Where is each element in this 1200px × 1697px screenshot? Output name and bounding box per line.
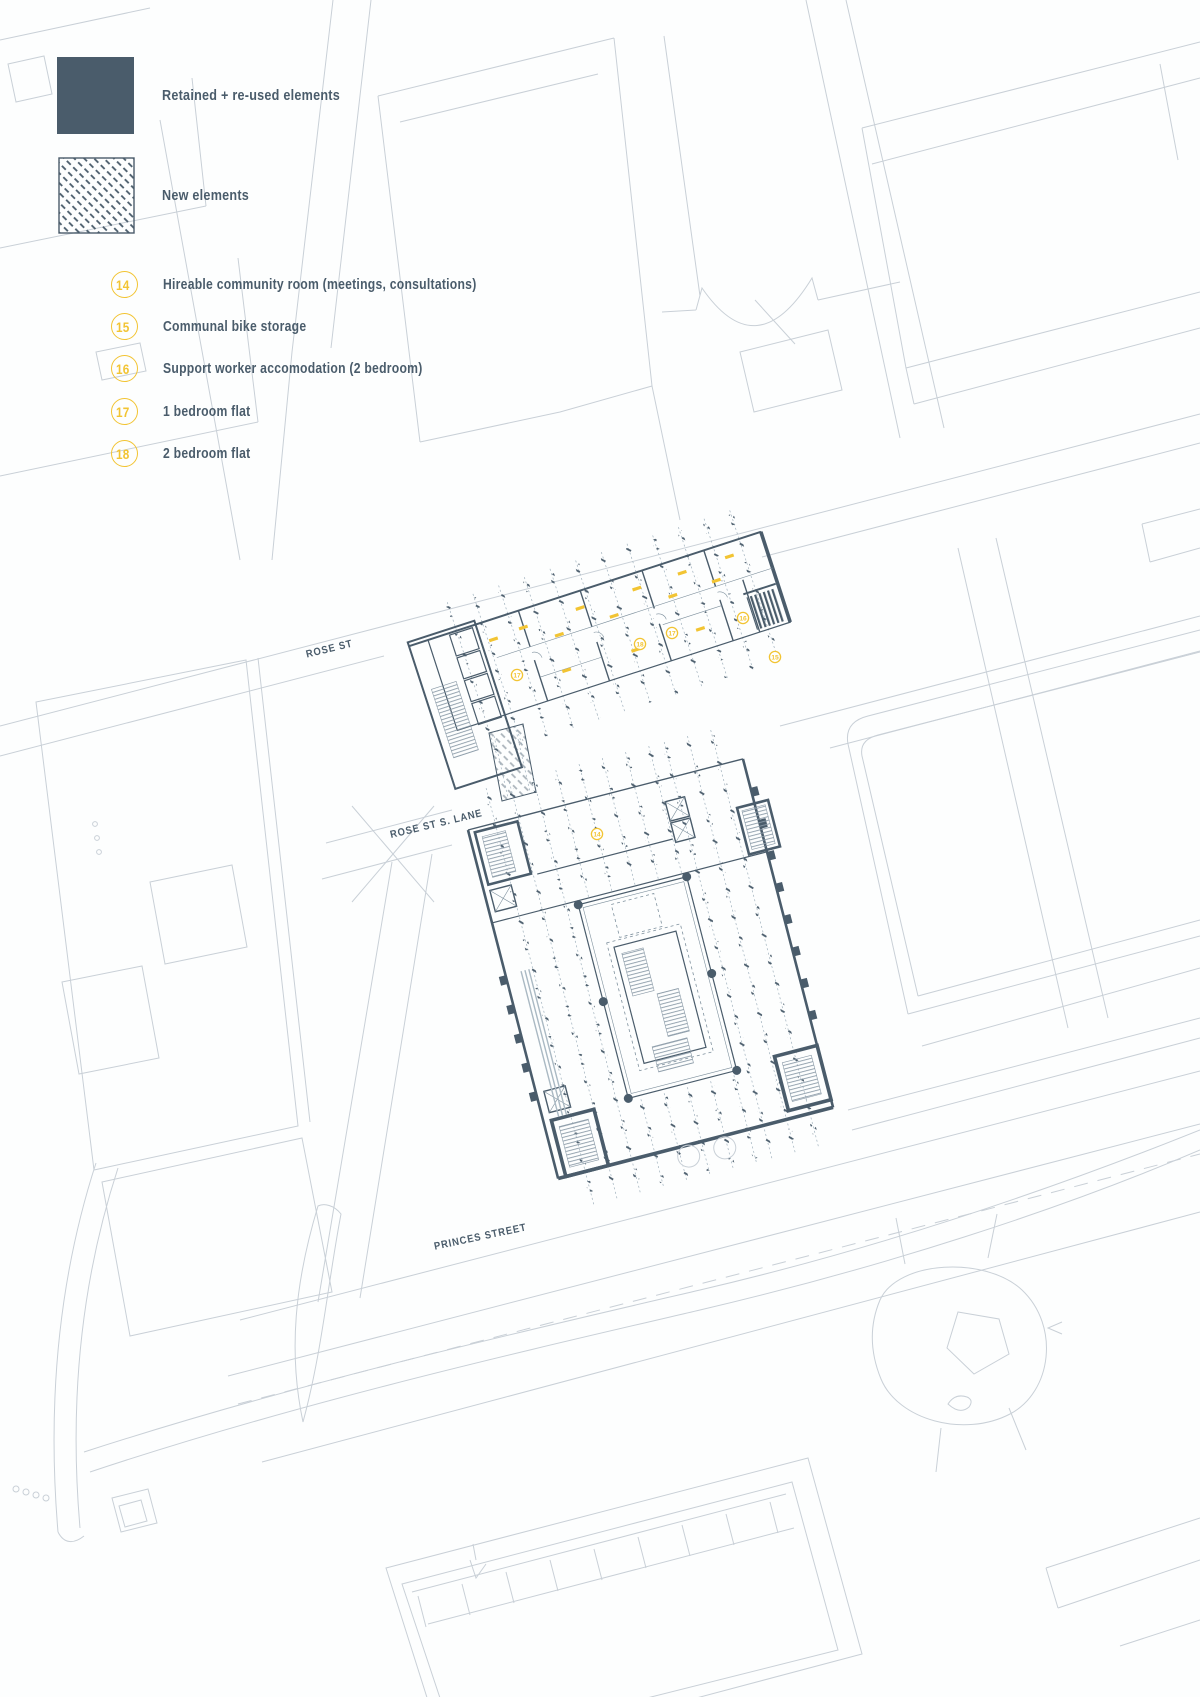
street-label-princes-street: PRINCES STREET bbox=[433, 1222, 528, 1253]
legend-number-badge: 17 bbox=[111, 398, 138, 425]
street-labels: ROSE ST ROSE ST S. LANE PRINCES STREET bbox=[305, 638, 528, 1253]
street-label-rose-st: ROSE ST bbox=[305, 638, 354, 660]
plan-marker-number: 15 bbox=[771, 654, 779, 661]
legend-number-badge: 18 bbox=[111, 440, 138, 467]
legend-label-retained-text: Retained + re-used elements bbox=[162, 87, 340, 104]
plan-marker: 17 bbox=[666, 627, 677, 638]
legend: Retained + re-used elements New elements… bbox=[0, 0, 520, 500]
plan-marker: 14 bbox=[591, 828, 602, 839]
legend-item-14: 14 Hireable community room (meetings, co… bbox=[111, 271, 536, 298]
legend-item-15: 15 Communal bike storage bbox=[111, 313, 334, 340]
legend-item-label: Communal bike storage bbox=[163, 319, 334, 335]
legend-item-label: Hireable community room (meetings, consu… bbox=[163, 277, 536, 293]
retained-swatch-icon bbox=[57, 57, 134, 134]
legend-item-17: 17 1 bedroom flat bbox=[111, 398, 267, 425]
legend-label-retained: Retained + re-used elements bbox=[162, 57, 374, 134]
rose-street-block bbox=[400, 503, 808, 789]
legend-item-16: 16 Support worker accomodation (2 bedroo… bbox=[111, 355, 472, 382]
princes-street-block bbox=[452, 721, 855, 1215]
legend-label-new: New elements bbox=[162, 157, 266, 234]
new-elements-swatch-icon bbox=[58, 157, 135, 234]
legend-item-label: 2 bedroom flat bbox=[163, 446, 267, 462]
plan-marker: 18 bbox=[634, 638, 645, 649]
plan-marker: 15 bbox=[769, 651, 780, 662]
plan-marker-number: 14 bbox=[593, 831, 601, 838]
plan-marker-number: 16 bbox=[739, 615, 747, 622]
site-plan-page: 17 18 17 16 15 14 ROSE ST ROSE ST S. LAN… bbox=[0, 0, 1200, 1697]
legend-number-badge: 15 bbox=[111, 313, 138, 340]
room-area-micro-labels bbox=[487, 553, 753, 693]
plan-markers: 17 18 17 16 15 14 bbox=[511, 612, 780, 839]
plan-marker-number: 17 bbox=[513, 672, 521, 679]
plan-marker: 16 bbox=[737, 612, 748, 623]
legend-item-label: Support worker accomodation (2 bedroom) bbox=[163, 361, 472, 377]
legend-item-label: 1 bedroom flat bbox=[163, 404, 267, 420]
legend-item-18: 18 2 bedroom flat bbox=[111, 440, 267, 467]
plan-marker-number: 17 bbox=[668, 630, 676, 637]
legend-label-new-text: New elements bbox=[162, 187, 249, 204]
plan-marker-number: 18 bbox=[636, 641, 644, 648]
legend-number-badge: 14 bbox=[111, 271, 138, 298]
plan-marker: 17 bbox=[511, 669, 522, 680]
legend-number-badge: 16 bbox=[111, 355, 138, 382]
